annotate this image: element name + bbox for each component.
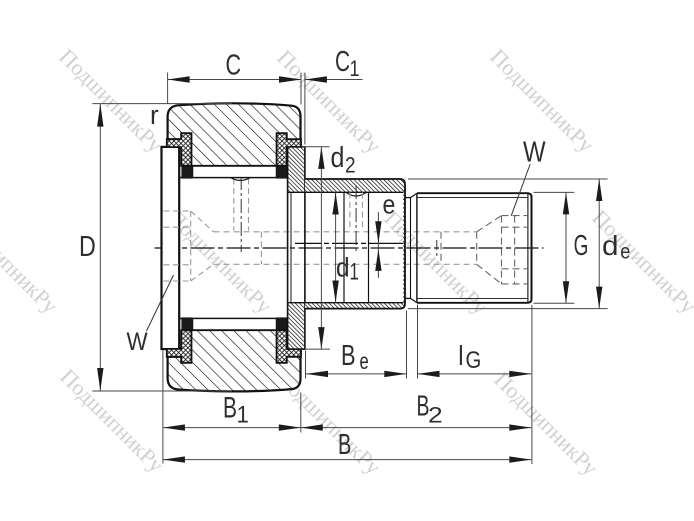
svg-text:d: d <box>602 231 618 262</box>
svg-text:B: B <box>223 392 237 424</box>
svg-text:d: d <box>336 253 350 282</box>
svg-text:2: 2 <box>428 403 443 427</box>
svg-text:2: 2 <box>345 154 356 178</box>
svg-text:G: G <box>466 346 482 373</box>
svg-text:r: r <box>150 100 159 130</box>
svg-text:d: d <box>331 142 345 174</box>
svg-text:e: e <box>383 191 396 220</box>
svg-text:B: B <box>341 340 356 371</box>
svg-text:1: 1 <box>350 57 360 81</box>
svg-text:e: e <box>360 349 369 374</box>
svg-text:l: l <box>458 341 463 371</box>
svg-text:e: e <box>620 240 630 264</box>
svg-text:C: C <box>226 50 242 82</box>
svg-text:1: 1 <box>350 258 359 285</box>
svg-text:1: 1 <box>237 401 249 428</box>
svg-text:W: W <box>523 135 546 168</box>
svg-text:B: B <box>338 429 351 460</box>
svg-text:D: D <box>79 230 96 263</box>
svg-text:G: G <box>574 230 589 262</box>
svg-text:C: C <box>335 46 350 78</box>
svg-text:W: W <box>127 329 149 356</box>
